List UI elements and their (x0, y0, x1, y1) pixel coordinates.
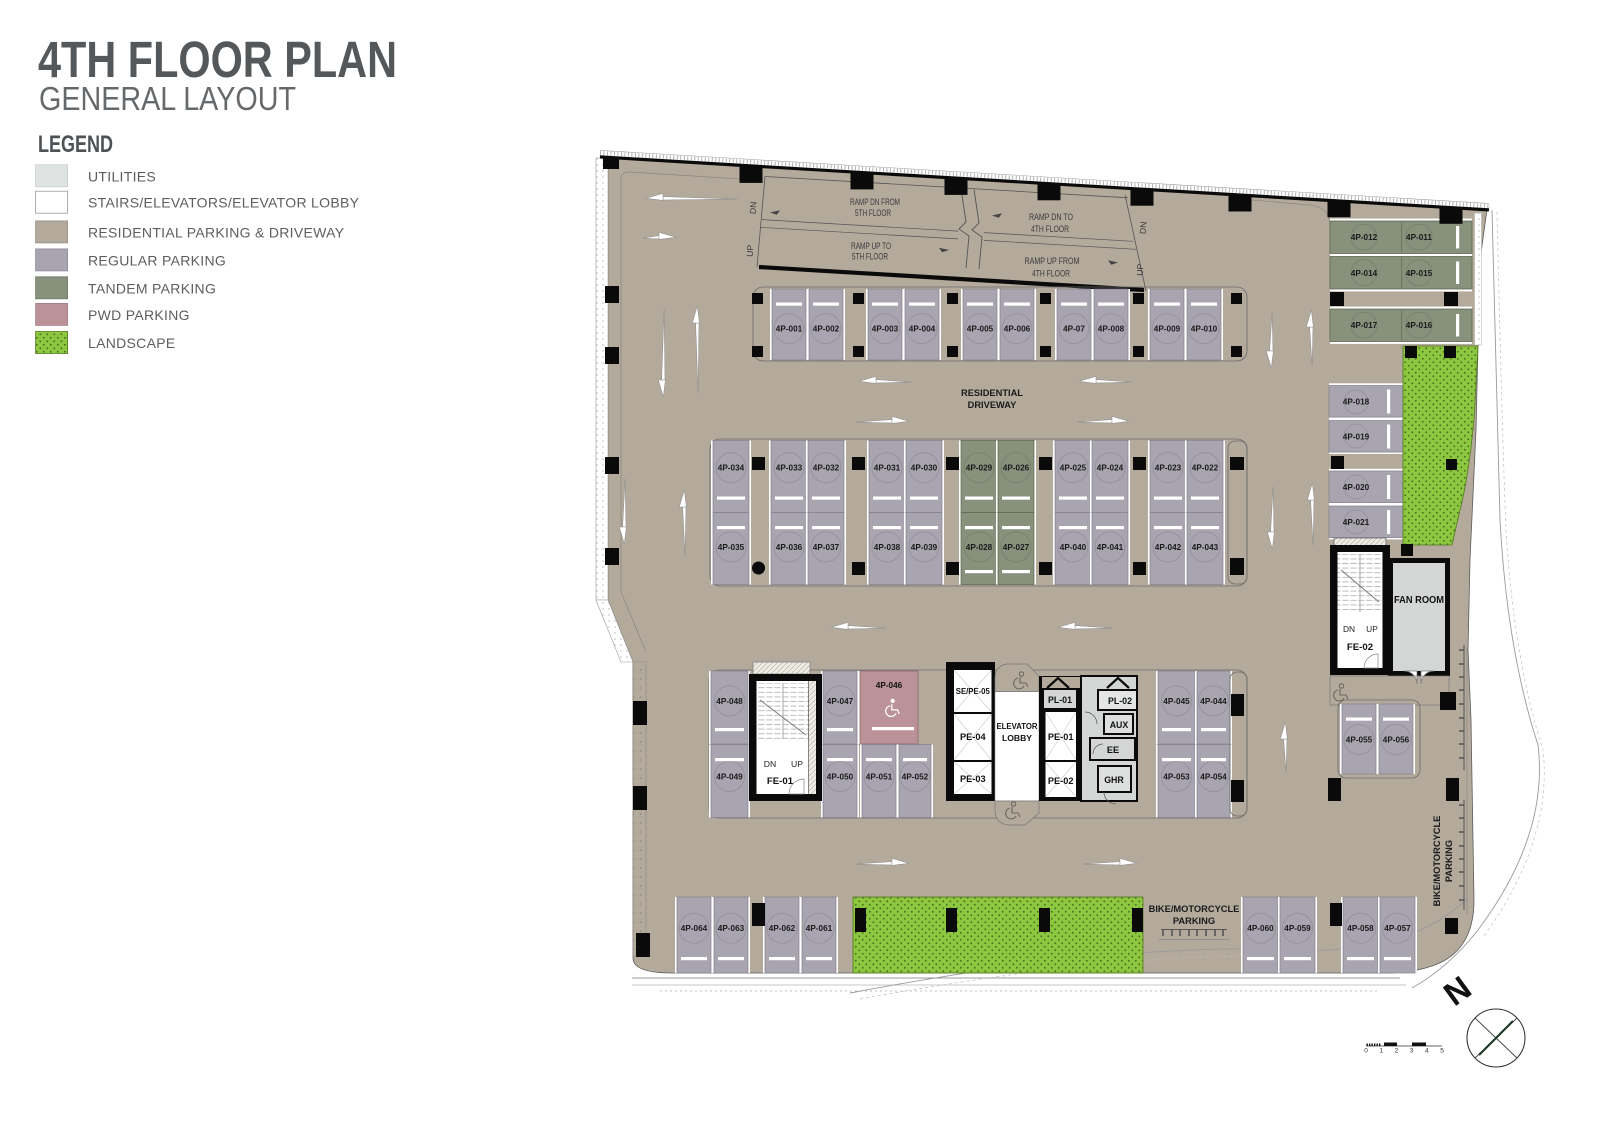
svg-text:4P-016: 4P-016 (1406, 321, 1433, 330)
svg-text:UP: UP (1135, 263, 1146, 276)
svg-text:PARKING: PARKING (1444, 840, 1454, 882)
svg-text:DN: DN (1343, 624, 1355, 634)
svg-text:4P-063: 4P-063 (718, 924, 745, 933)
svg-text:PARKING: PARKING (1173, 916, 1215, 926)
svg-text:4P-044: 4P-044 (1200, 697, 1227, 706)
svg-text:SE/PE-05: SE/PE-05 (956, 687, 990, 696)
svg-text:PL-01: PL-01 (1048, 695, 1072, 705)
svg-text:4P-032: 4P-032 (813, 464, 840, 473)
svg-text:LEGEND: LEGEND (38, 131, 113, 158)
svg-text:DRIVEWAY: DRIVEWAY (968, 400, 1018, 410)
svg-text:4P-010: 4P-010 (1191, 325, 1218, 334)
svg-text:4TH FLOOR: 4TH FLOOR (1032, 269, 1070, 279)
svg-text:4P-034: 4P-034 (718, 464, 745, 473)
svg-text:DN: DN (764, 759, 776, 769)
svg-text:FAN ROOM: FAN ROOM (1394, 595, 1444, 606)
svg-text:4P-037: 4P-037 (813, 543, 840, 552)
svg-text:AUX: AUX (1110, 720, 1129, 730)
svg-text:PE-01: PE-01 (1048, 732, 1074, 742)
svg-text:4TH FLOOR: 4TH FLOOR (1031, 224, 1069, 234)
svg-text:4P-002: 4P-002 (813, 325, 840, 334)
svg-text:4P-041: 4P-041 (1097, 543, 1124, 552)
svg-text:4P-028: 4P-028 (966, 543, 993, 552)
svg-text:5TH FLOOR: 5TH FLOOR (852, 252, 888, 262)
svg-text:4P-054: 4P-054 (1200, 773, 1227, 782)
svg-text:4P-003: 4P-003 (872, 325, 899, 334)
svg-text:4P-055: 4P-055 (1346, 736, 1373, 745)
svg-text:4P-008: 4P-008 (1098, 325, 1125, 334)
svg-text:UP: UP (791, 759, 803, 769)
svg-text:RAMP DN FROM: RAMP DN FROM (850, 197, 900, 207)
svg-text:4P-056: 4P-056 (1383, 736, 1410, 745)
svg-text:UP: UP (745, 244, 756, 257)
svg-text:LOBBY: LOBBY (1002, 733, 1032, 743)
svg-text:FE-02: FE-02 (1347, 642, 1373, 653)
svg-text:4P-042: 4P-042 (1155, 543, 1182, 552)
svg-text:2: 2 (1395, 1048, 1399, 1055)
svg-text:PE-03: PE-03 (960, 774, 986, 784)
svg-text:4P-019: 4P-019 (1343, 433, 1370, 442)
svg-text:4P-031: 4P-031 (874, 464, 901, 473)
svg-text:5TH FLOOR: 5TH FLOOR (855, 208, 891, 218)
svg-text:BIKE/MOTORCYCLE: BIKE/MOTORCYCLE (1432, 816, 1442, 907)
svg-text:4P-048: 4P-048 (716, 697, 743, 706)
svg-text:RESIDENTIAL: RESIDENTIAL (961, 388, 1023, 398)
svg-text:4P-051: 4P-051 (866, 773, 893, 782)
svg-text:4P-020: 4P-020 (1343, 483, 1370, 492)
svg-text:UP: UP (1366, 624, 1378, 634)
svg-text:4P-021: 4P-021 (1343, 518, 1370, 527)
svg-text:LANDSCAPE: LANDSCAPE (88, 335, 176, 351)
svg-text:4P-040: 4P-040 (1060, 543, 1087, 552)
svg-text:GHR: GHR (1104, 775, 1124, 785)
svg-text:PE-04: PE-04 (960, 732, 986, 742)
svg-text:DN: DN (1138, 221, 1149, 234)
svg-text:4P-061: 4P-061 (806, 924, 833, 933)
svg-text:FE-01: FE-01 (767, 776, 794, 787)
svg-text:4P-049: 4P-049 (716, 773, 743, 782)
svg-text:4P-033: 4P-033 (776, 464, 803, 473)
svg-text:4P-059: 4P-059 (1284, 924, 1311, 933)
svg-text:4P-005: 4P-005 (967, 325, 994, 334)
svg-text:4P-045: 4P-045 (1163, 697, 1190, 706)
svg-text:4P-023: 4P-023 (1155, 464, 1182, 473)
svg-text:4P-029: 4P-029 (966, 464, 993, 473)
svg-text:PWD PARKING: PWD PARKING (88, 307, 190, 323)
svg-text:4P-015: 4P-015 (1406, 269, 1433, 278)
svg-text:4P-036: 4P-036 (776, 543, 803, 552)
svg-text:BIKE/MOTORCYCLE: BIKE/MOTORCYCLE (1149, 904, 1240, 914)
svg-text:4P-014: 4P-014 (1351, 269, 1378, 278)
svg-text:PL-02: PL-02 (1108, 696, 1132, 706)
svg-text:5: 5 (1440, 1048, 1444, 1055)
svg-text:4P-053: 4P-053 (1163, 773, 1190, 782)
svg-text:4P-017: 4P-017 (1351, 321, 1378, 330)
svg-text:4P-027: 4P-027 (1003, 543, 1030, 552)
svg-text:1: 1 (1379, 1048, 1383, 1055)
svg-text:4P-058: 4P-058 (1347, 924, 1374, 933)
svg-text:STAIRS/ELEVATORS/ELEVATOR LOBB: STAIRS/ELEVATORS/ELEVATOR LOBBY (88, 195, 360, 211)
svg-text:4P-043: 4P-043 (1192, 543, 1219, 552)
svg-text:4P-035: 4P-035 (718, 543, 745, 552)
svg-text:4P-064: 4P-064 (681, 924, 708, 933)
svg-text:RAMP UP FROM: RAMP UP FROM (1025, 256, 1080, 266)
svg-text:4P-026: 4P-026 (1003, 464, 1030, 473)
svg-text:4P-024: 4P-024 (1097, 464, 1124, 473)
svg-text:4P-001: 4P-001 (776, 325, 803, 334)
svg-text:TANDEM PARKING: TANDEM PARKING (88, 280, 216, 296)
svg-text:3: 3 (1410, 1048, 1414, 1055)
svg-text:REGULAR PARKING: REGULAR PARKING (88, 252, 226, 268)
svg-text:4P-012: 4P-012 (1351, 233, 1378, 242)
svg-text:4P-025: 4P-025 (1060, 464, 1087, 473)
svg-text:4P-018: 4P-018 (1343, 398, 1370, 407)
svg-text:4P-009: 4P-009 (1154, 325, 1181, 334)
svg-text:0: 0 (1364, 1048, 1368, 1055)
svg-text:RAMP DN TO: RAMP DN TO (1029, 212, 1073, 222)
svg-text:4P-039: 4P-039 (911, 543, 938, 552)
svg-text:4P-011: 4P-011 (1406, 233, 1432, 242)
svg-text:4P-047: 4P-047 (827, 697, 854, 706)
svg-text:4TH FLOOR PLAN: 4TH FLOOR PLAN (38, 31, 397, 88)
svg-text:4: 4 (1425, 1048, 1429, 1055)
svg-text:4P-07: 4P-07 (1063, 325, 1085, 334)
svg-text:4P-046: 4P-046 (876, 681, 903, 690)
svg-text:4P-030: 4P-030 (911, 464, 938, 473)
svg-text:RAMP UP TO: RAMP UP TO (851, 241, 891, 251)
svg-text:4P-062: 4P-062 (769, 924, 796, 933)
svg-text:4P-022: 4P-022 (1192, 464, 1219, 473)
svg-text:EE: EE (1107, 745, 1119, 755)
svg-text:4P-006: 4P-006 (1004, 325, 1031, 334)
svg-text:RESIDENTIAL PARKING & DRIVEWAY: RESIDENTIAL PARKING & DRIVEWAY (88, 224, 345, 240)
svg-text:DN: DN (748, 201, 759, 214)
svg-text:UTILITIES: UTILITIES (88, 168, 156, 184)
svg-text:4P-057: 4P-057 (1384, 924, 1411, 933)
svg-text:4P-052: 4P-052 (902, 773, 929, 782)
svg-text:ELEVATOR: ELEVATOR (997, 721, 1039, 731)
svg-text:4P-050: 4P-050 (827, 773, 854, 782)
svg-text:4P-060: 4P-060 (1247, 924, 1274, 933)
svg-text:PE-02: PE-02 (1048, 776, 1074, 786)
svg-text:GENERAL LAYOUT: GENERAL LAYOUT (39, 81, 296, 118)
svg-text:4P-004: 4P-004 (909, 325, 936, 334)
svg-text:4P-038: 4P-038 (874, 543, 901, 552)
